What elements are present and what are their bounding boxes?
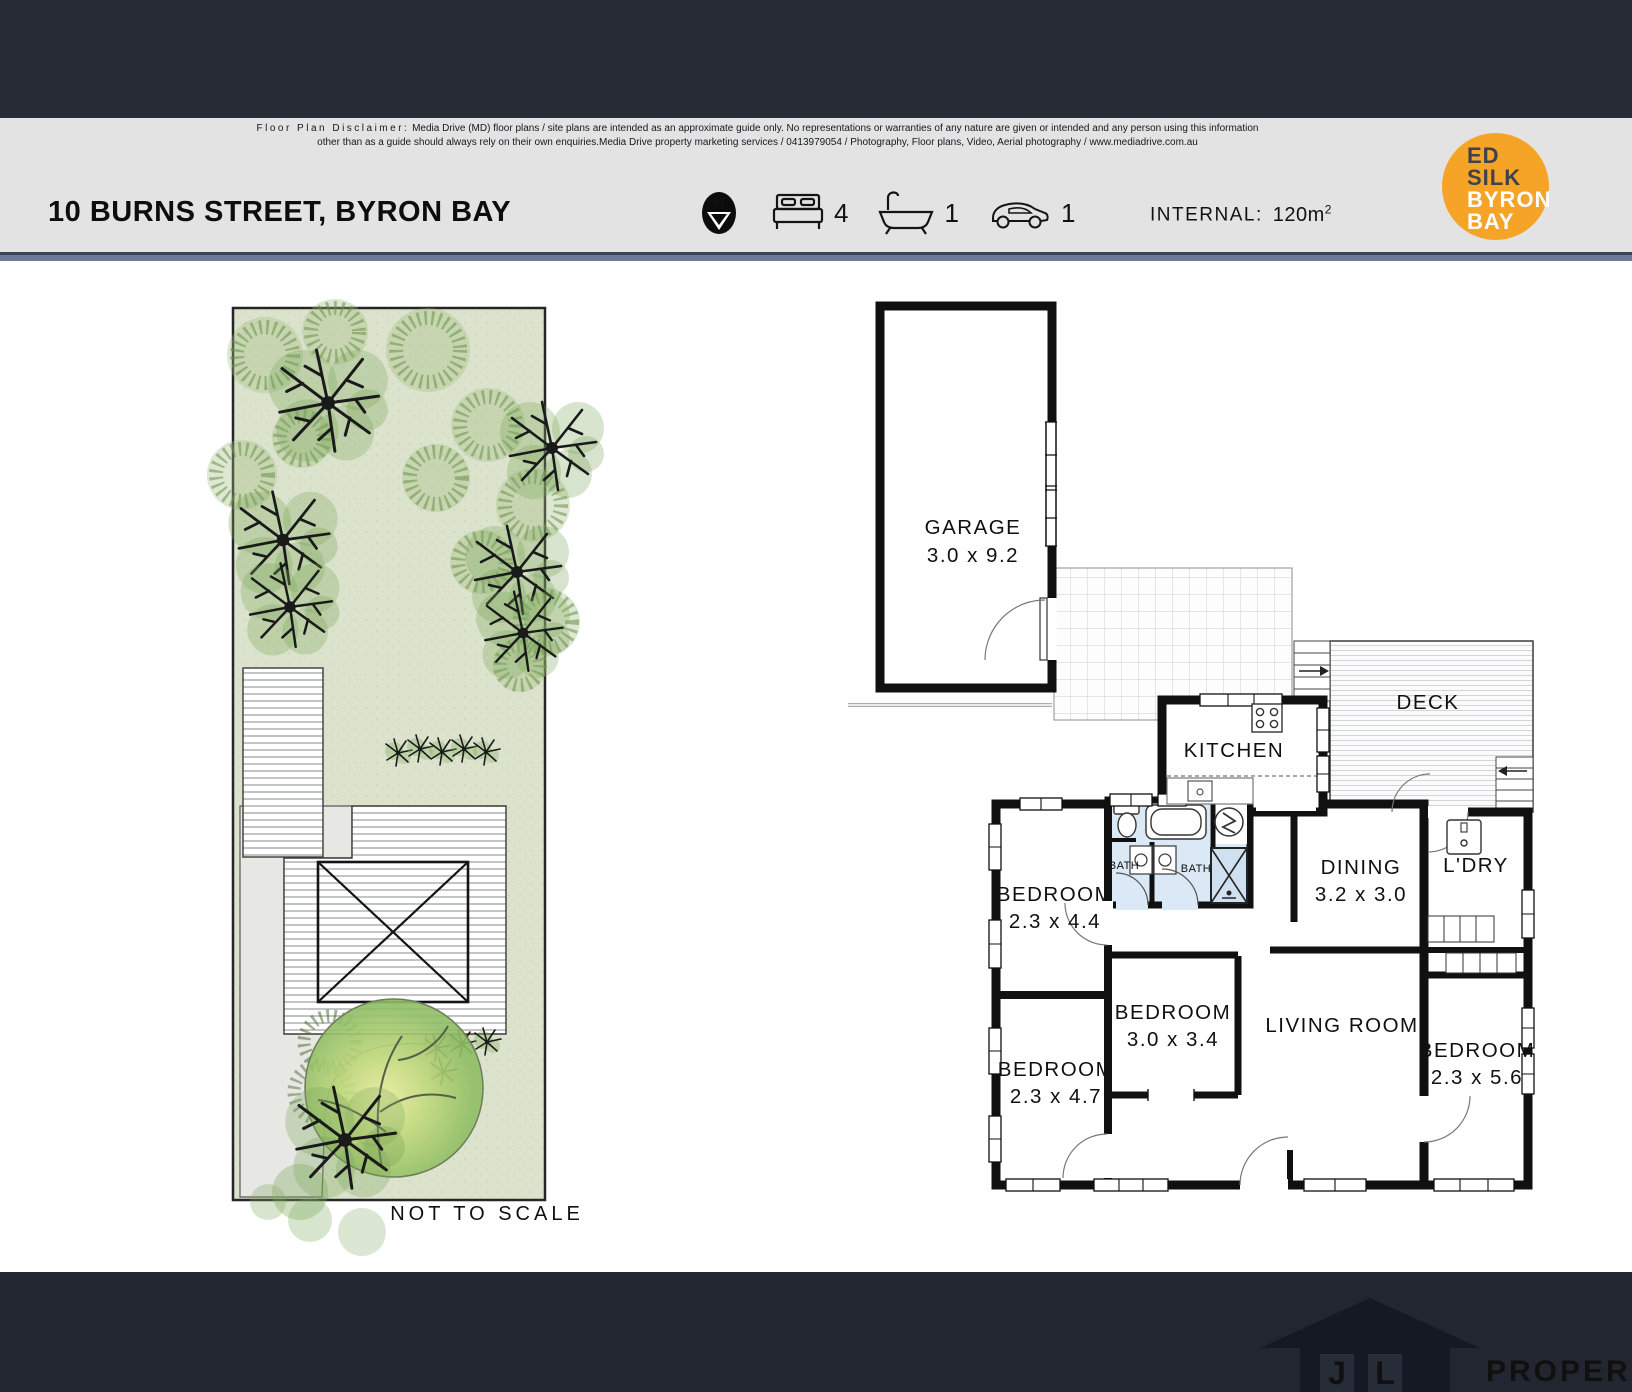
internal-label: INTERNAL: bbox=[1150, 205, 1263, 226]
bed-icon bbox=[772, 193, 824, 233]
deck-stairs-top bbox=[1294, 641, 1330, 701]
bath-count: 1 bbox=[944, 198, 958, 229]
stove-icon bbox=[1252, 704, 1282, 732]
internal-value: 120m bbox=[1273, 204, 1325, 226]
kitchen-label: KITCHEN bbox=[1184, 739, 1284, 762]
deck-stairs-right bbox=[1496, 757, 1533, 812]
garage-window bbox=[1045, 422, 1057, 546]
internal-area: INTERNAL:120m2 bbox=[1150, 202, 1332, 227]
disclaimer-line1: Media Drive (MD) floor plans / site plan… bbox=[412, 123, 1258, 134]
dining-dims: 3.2 x 3.0 bbox=[1315, 883, 1407, 906]
deck: DECK bbox=[1294, 641, 1533, 812]
laundry-sink-icon bbox=[1447, 820, 1481, 854]
hot-water-icon bbox=[1215, 808, 1243, 836]
brand-name: PROPERTY bbox=[1486, 1355, 1628, 1388]
jl-property-logo: J L PROPERTY bbox=[1258, 1284, 1628, 1392]
agency-logo-line2: SILK bbox=[1467, 167, 1521, 189]
bed3-dims: 3.0 x 3.4 bbox=[1127, 1028, 1219, 1051]
agency-logo-line3: BYRON bbox=[1467, 189, 1551, 211]
disclaimer-text: Floor Plan Disclaimer: Media Drive (MD) … bbox=[0, 122, 1515, 149]
property-stats: N 4 1 bbox=[700, 190, 1075, 236]
bed4-dims: 2.3 x 5.6 bbox=[1431, 1066, 1523, 1089]
laundry-label: L'DRY bbox=[1443, 854, 1509, 877]
bed2-dims: 2.3 x 4.7 bbox=[1010, 1085, 1102, 1108]
floorplan-page: Floor Plan Disclaimer: Media Drive (MD) … bbox=[0, 0, 1632, 1392]
bath-icon bbox=[878, 190, 934, 236]
agency-logo: ED SILK BYRON BAY bbox=[1442, 133, 1549, 240]
bath-left-label: BATH bbox=[1109, 860, 1140, 872]
deck-label: DECK bbox=[1397, 691, 1460, 714]
header: Floor Plan Disclaimer: Media Drive (MD) … bbox=[0, 118, 1632, 252]
main-content: NOT TO SCALE bbox=[0, 261, 1632, 1272]
car-count: 1 bbox=[1061, 198, 1075, 229]
site-garage-roof bbox=[243, 668, 323, 857]
dining-label: DINING bbox=[1321, 856, 1402, 879]
garage-label: GARAGE bbox=[925, 516, 1022, 539]
page-title: 10 BURNS STREET, BYRON BAY bbox=[48, 196, 511, 229]
bed1-dims: 2.3 x 4.4 bbox=[1009, 910, 1101, 933]
top-bar bbox=[0, 0, 1632, 118]
footer: J L PROPERTY bbox=[0, 1272, 1632, 1392]
bath-right-label: BATH bbox=[1181, 863, 1212, 875]
bathtub-icon bbox=[1146, 805, 1206, 839]
bed-count: 4 bbox=[834, 198, 848, 229]
floor-plan: DECK GARAGE 3.0 x 9.2 bbox=[840, 280, 1570, 1210]
bed1-label: BEDROOM bbox=[997, 883, 1113, 906]
garage-dims: 3.0 x 9.2 bbox=[927, 544, 1019, 567]
shower-icon bbox=[1211, 848, 1247, 903]
room-garage: GARAGE 3.0 x 9.2 bbox=[880, 306, 1057, 688]
bed4-label: BEDROOM bbox=[1419, 1039, 1535, 1062]
house-roof-icon bbox=[1260, 1298, 1480, 1348]
living-label: LIVING ROOM bbox=[1265, 1014, 1418, 1037]
agency-logo-line4: BAY bbox=[1467, 211, 1514, 233]
kitchen-bench bbox=[1167, 778, 1253, 804]
site-plan: NOT TO SCALE bbox=[150, 261, 640, 1271]
agency-logo-line1: ED bbox=[1467, 145, 1500, 167]
disclaimer-label: Floor Plan Disclaimer: bbox=[257, 123, 410, 134]
brand-letter-l: L bbox=[1375, 1355, 1395, 1391]
bath-block: BATH BATH bbox=[1108, 800, 1250, 910]
north-letter: N bbox=[714, 195, 725, 212]
internal-sup: 2 bbox=[1325, 202, 1332, 216]
north-icon: N bbox=[700, 190, 738, 236]
brand-letter-j: J bbox=[1328, 1355, 1346, 1391]
bed3-label: BEDROOM bbox=[1115, 1001, 1231, 1024]
car-icon bbox=[989, 196, 1051, 230]
not-to-scale-label: NOT TO SCALE bbox=[390, 1203, 584, 1225]
disclaimer-line2: other than as a guide should always rely… bbox=[317, 137, 1198, 148]
bed2-label: BEDROOM bbox=[998, 1058, 1114, 1081]
